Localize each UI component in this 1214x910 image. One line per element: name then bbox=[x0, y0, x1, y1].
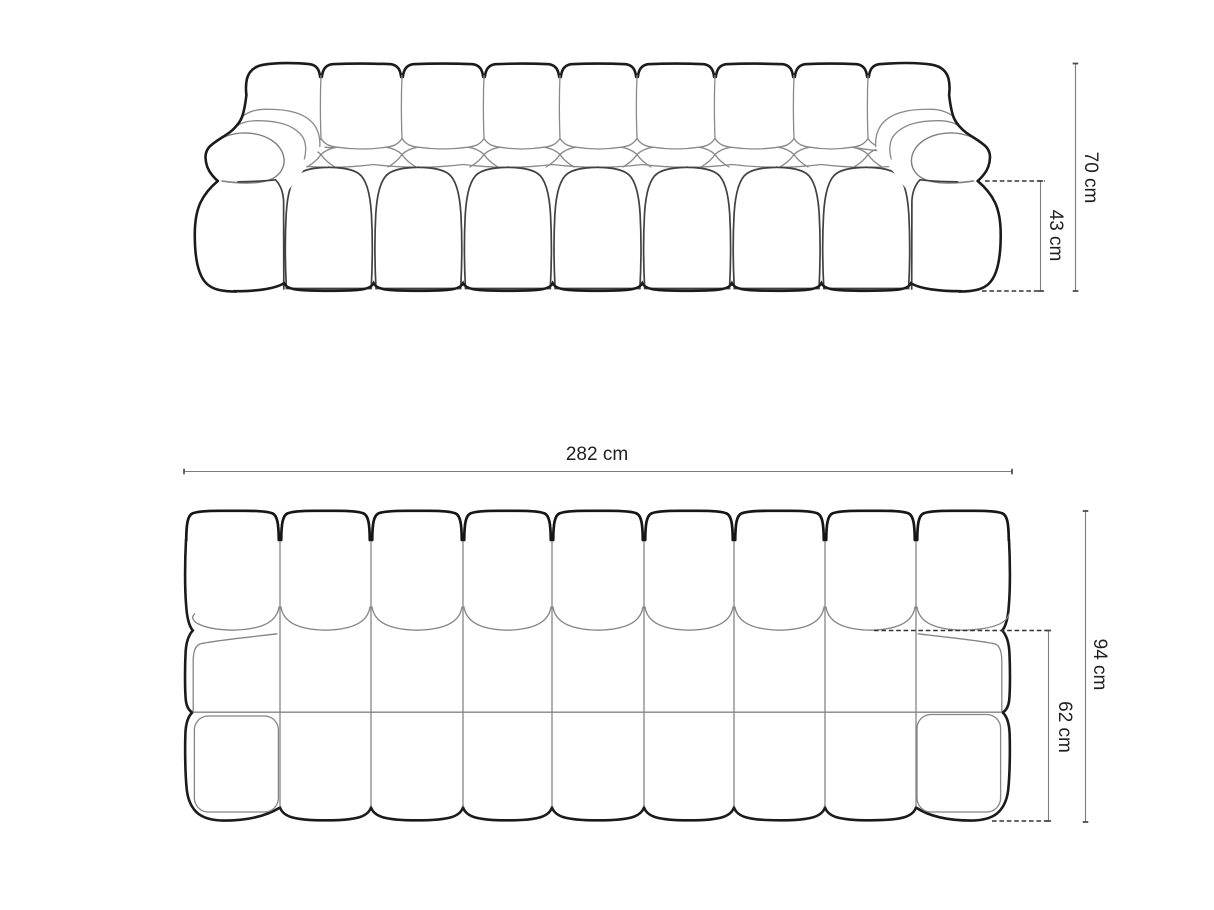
svg-text:62 cm: 62 cm bbox=[1054, 701, 1075, 753]
svg-text:70 cm: 70 cm bbox=[1080, 152, 1101, 204]
svg-text:94 cm: 94 cm bbox=[1089, 639, 1110, 691]
svg-text:282 cm: 282 cm bbox=[566, 444, 628, 465]
svg-text:43 cm: 43 cm bbox=[1045, 210, 1066, 262]
